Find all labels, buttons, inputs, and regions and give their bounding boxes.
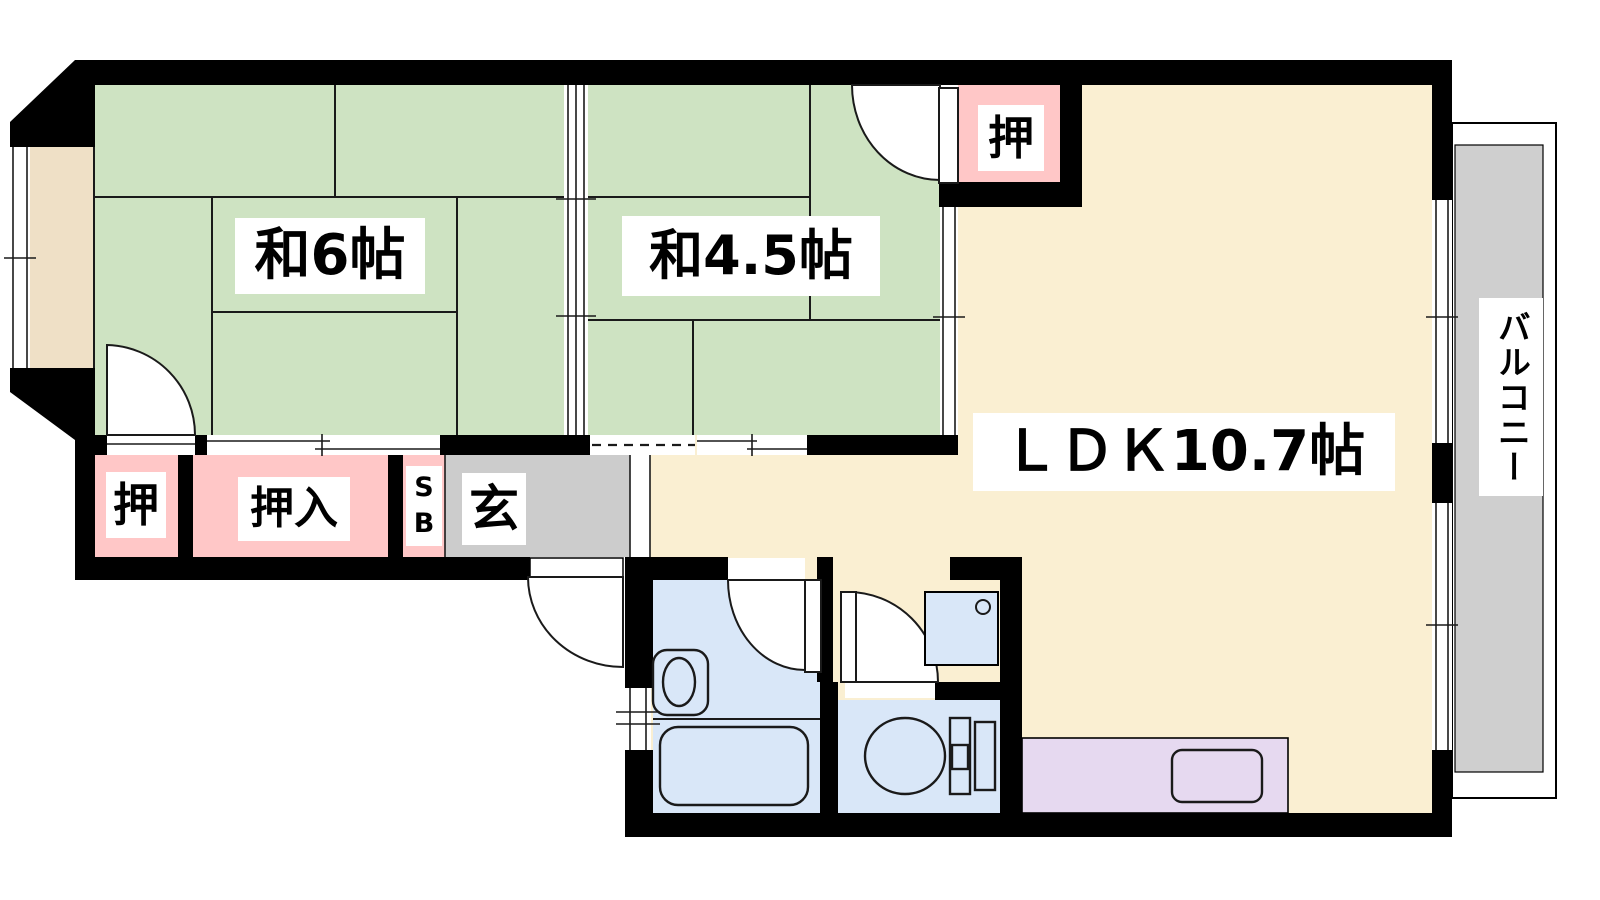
wall-closet-divider-a xyxy=(178,453,193,557)
toilet-door-leaf xyxy=(841,592,856,682)
ldk-window-upper-gap xyxy=(1432,200,1452,443)
wall-closet-divider-b xyxy=(388,453,403,557)
floorplan: 和6帖 和4.5帖 ＬＤＫ10.7帖 押 押 押入 S B 玄 バルコニー xyxy=(0,0,1600,900)
room-label-ldk: ＬＤＫ10.7帖 xyxy=(973,413,1395,491)
oshiire-door-gap xyxy=(207,435,440,455)
room-label-balcony: バルコニー xyxy=(1479,298,1543,496)
wall-room6-south-b xyxy=(195,435,207,455)
wall-room6-south-a xyxy=(95,435,107,455)
open-boundary xyxy=(590,435,695,455)
wall-bay-bottom-west xyxy=(10,368,95,580)
room-label-closet-bottom: 押 xyxy=(106,472,166,538)
wall-east-mid xyxy=(1432,443,1452,503)
wall-east-upper xyxy=(1432,60,1452,200)
bath-window-gap xyxy=(625,688,651,750)
ldk-floor-mid xyxy=(958,207,1432,435)
oshiire-sliding-door xyxy=(207,434,440,456)
wall-bath-west-lower xyxy=(625,750,653,813)
wall-room45-south xyxy=(807,435,940,455)
wall-bay-top xyxy=(10,60,95,147)
closet-top-door-leaf xyxy=(939,88,958,183)
entrance-door-swing xyxy=(528,577,623,667)
wall-toilet-west xyxy=(820,682,838,813)
wall-closet-top-south xyxy=(939,182,1082,207)
washstand xyxy=(925,592,998,665)
wall-room6-south-c xyxy=(440,435,590,455)
wall-toilet-east xyxy=(1000,558,1022,813)
wall-south-east xyxy=(625,813,1452,837)
room45-sliding-door xyxy=(697,434,807,456)
wall-bath-west-upper xyxy=(625,557,653,688)
bath-door-leaf xyxy=(805,580,821,672)
room-label-closet-top: 押 xyxy=(978,105,1044,171)
room-label-oshiire: 押入 xyxy=(238,477,350,541)
bay-window-floor xyxy=(30,147,95,368)
room-label-entrance: 玄 xyxy=(462,473,526,545)
room6-doorway xyxy=(107,435,195,455)
toilet-doorway-gap xyxy=(845,682,935,698)
entrance-step xyxy=(630,453,650,557)
room-label-shoebox: S B xyxy=(406,466,442,546)
bath-doorway-gap xyxy=(728,558,805,580)
ldk-floor-north xyxy=(1082,85,1432,207)
wall-south-west xyxy=(75,557,530,580)
room6-doorway-gap xyxy=(107,435,195,455)
wall-partition-foot xyxy=(940,435,958,455)
room-label-japanese-45: 和4.5帖 xyxy=(622,216,880,296)
entrance-doorway-frame xyxy=(530,558,623,577)
wall-north xyxy=(75,60,1452,85)
room-label-japanese-6: 和6帖 xyxy=(235,218,425,294)
ldk-window-lower-gap xyxy=(1432,503,1452,750)
